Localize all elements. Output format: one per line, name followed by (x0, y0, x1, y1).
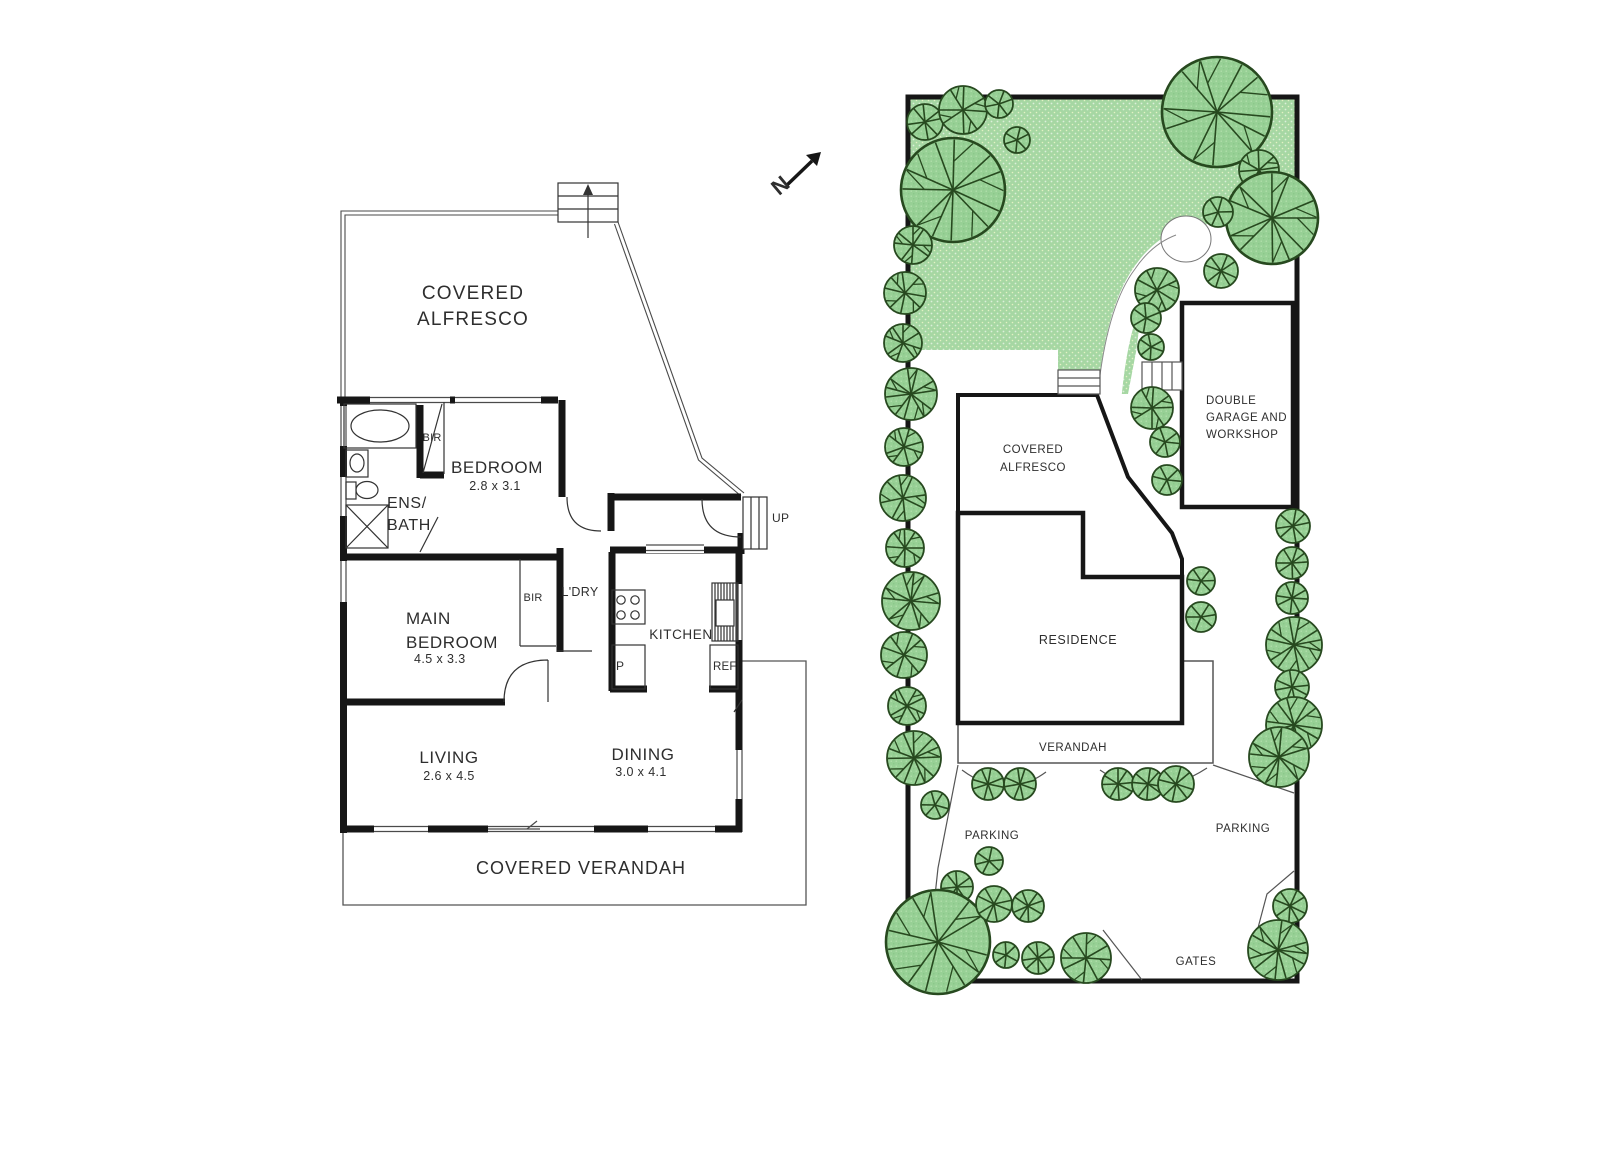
floorplan-page: COVERED ALFRESCO ENS/ BATH BIR BEDROOM 2… (0, 0, 1600, 1162)
alfresco-outline (341, 211, 744, 496)
label-site-verandah: VERANDAH (1039, 742, 1107, 754)
label-garage-3: WORKSHOP (1206, 429, 1278, 441)
label-dining: DINING (611, 745, 674, 764)
stove-icon (612, 590, 645, 624)
label-ens-1: ENS/ (387, 495, 427, 512)
label-ens-2: BATH (387, 517, 431, 534)
label-garage-1: DOUBLE (1206, 395, 1256, 407)
label-covered-verandah: COVERED VERANDAH (476, 858, 686, 878)
label-bedroom-dim: 2.8 x 3.1 (469, 479, 521, 493)
main-bir-closet (520, 559, 592, 651)
deck-stairs (558, 183, 618, 238)
floor-plan: COVERED ALFRESCO ENS/ BATH BIR BEDROOM 2… (337, 152, 821, 905)
label-fridge: REF (713, 661, 737, 673)
label-north: N (766, 171, 794, 200)
label-living-dim: 2.6 x 4.5 (423, 769, 475, 783)
north-arrow: N (766, 152, 821, 200)
site-plan: COVERED ALFRESCO RESIDENCE VERANDAH DOUB… (880, 57, 1322, 994)
front-door-arc (702, 499, 741, 537)
label-fp-alfresco-1: COVERED (422, 283, 524, 304)
floorplan-siteplan-drawing: COVERED ALFRESCO ENS/ BATH BIR BEDROOM 2… (0, 0, 1600, 1162)
sink-icon (716, 600, 734, 626)
entry-steps (743, 497, 767, 549)
label-fp-alfresco-2: ALFRESCO (417, 309, 529, 330)
label-main-bedroom-2: BEDROOM (406, 633, 498, 652)
main-bedroom-door-arc (504, 660, 548, 702)
label-main-bedroom-1: MAIN (406, 609, 451, 628)
label-parking-left: PARKING (965, 830, 1019, 842)
bedroom-door-arc (567, 497, 601, 531)
label-parking-right: PARKING (1216, 823, 1270, 835)
label-site-alfresco-1: COVERED (1003, 444, 1063, 456)
floor-plan-labels: COVERED ALFRESCO ENS/ BATH BIR BEDROOM 2… (387, 283, 789, 878)
kitchen-fixtures (612, 583, 742, 712)
toilet-icon (356, 482, 378, 499)
label-site-alfresco-2: ALFRESCO (1000, 462, 1066, 474)
label-laundry: L'DRY (561, 585, 598, 599)
label-garage-2: GARAGE AND (1206, 412, 1287, 424)
label-bir-bath: BIR (423, 432, 442, 444)
label-kitchen: KITCHEN (649, 627, 712, 642)
label-bedroom: BEDROOM (451, 458, 543, 477)
label-pantry: P (616, 659, 624, 673)
label-bir-main: BIR (524, 592, 543, 604)
label-up: UP (772, 511, 789, 525)
label-site-residence: RESIDENCE (1039, 633, 1117, 647)
label-dining-dim: 3.0 x 4.1 (615, 765, 667, 779)
label-gates: GATES (1176, 956, 1217, 968)
bathtub-icon (351, 410, 409, 442)
label-living: LIVING (419, 748, 478, 767)
label-main-bedroom-dim: 4.5 x 3.3 (414, 652, 466, 666)
